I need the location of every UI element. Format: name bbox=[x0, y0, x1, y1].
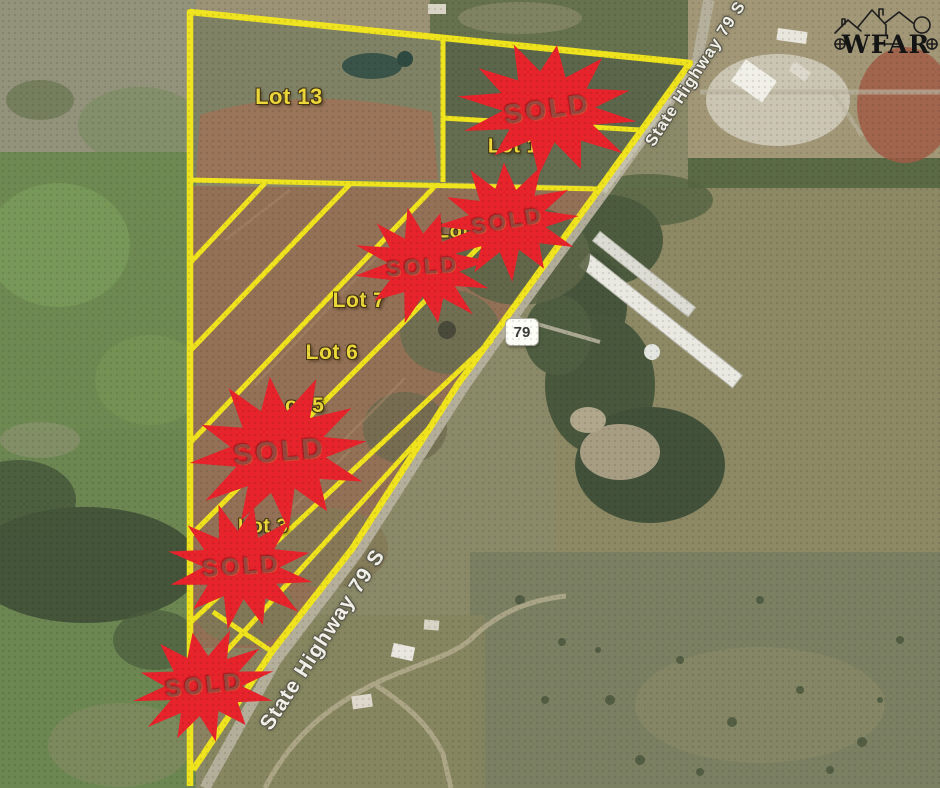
sold-text: SOLD bbox=[201, 550, 281, 583]
sold-text: SOLD bbox=[386, 251, 461, 282]
sold-text: SOLD bbox=[470, 202, 547, 240]
highway-shield: 79 bbox=[505, 318, 539, 346]
lot-label-6: Lot 6 bbox=[306, 341, 359, 365]
sold-text: SOLD bbox=[163, 668, 244, 704]
highway-shield-number: 79 bbox=[514, 324, 531, 341]
plat-boundary-lines bbox=[0, 0, 940, 788]
wfar-logo: WFAR bbox=[833, 0, 940, 62]
lot-label-7: Lot 7 bbox=[333, 289, 386, 313]
sold-text: SOLD bbox=[231, 432, 326, 473]
wfar-house-icon: WFAR bbox=[833, 0, 940, 62]
aerial-plat-map: Lot 13 Lot 1 Lot 8 Lot 7 Lot 6 Lot 5 Lot… bbox=[0, 0, 940, 788]
wfar-logo-text: WFAR bbox=[841, 30, 931, 59]
lot-label-13: Lot 13 bbox=[255, 84, 323, 110]
sold-text: SOLD bbox=[503, 88, 593, 131]
